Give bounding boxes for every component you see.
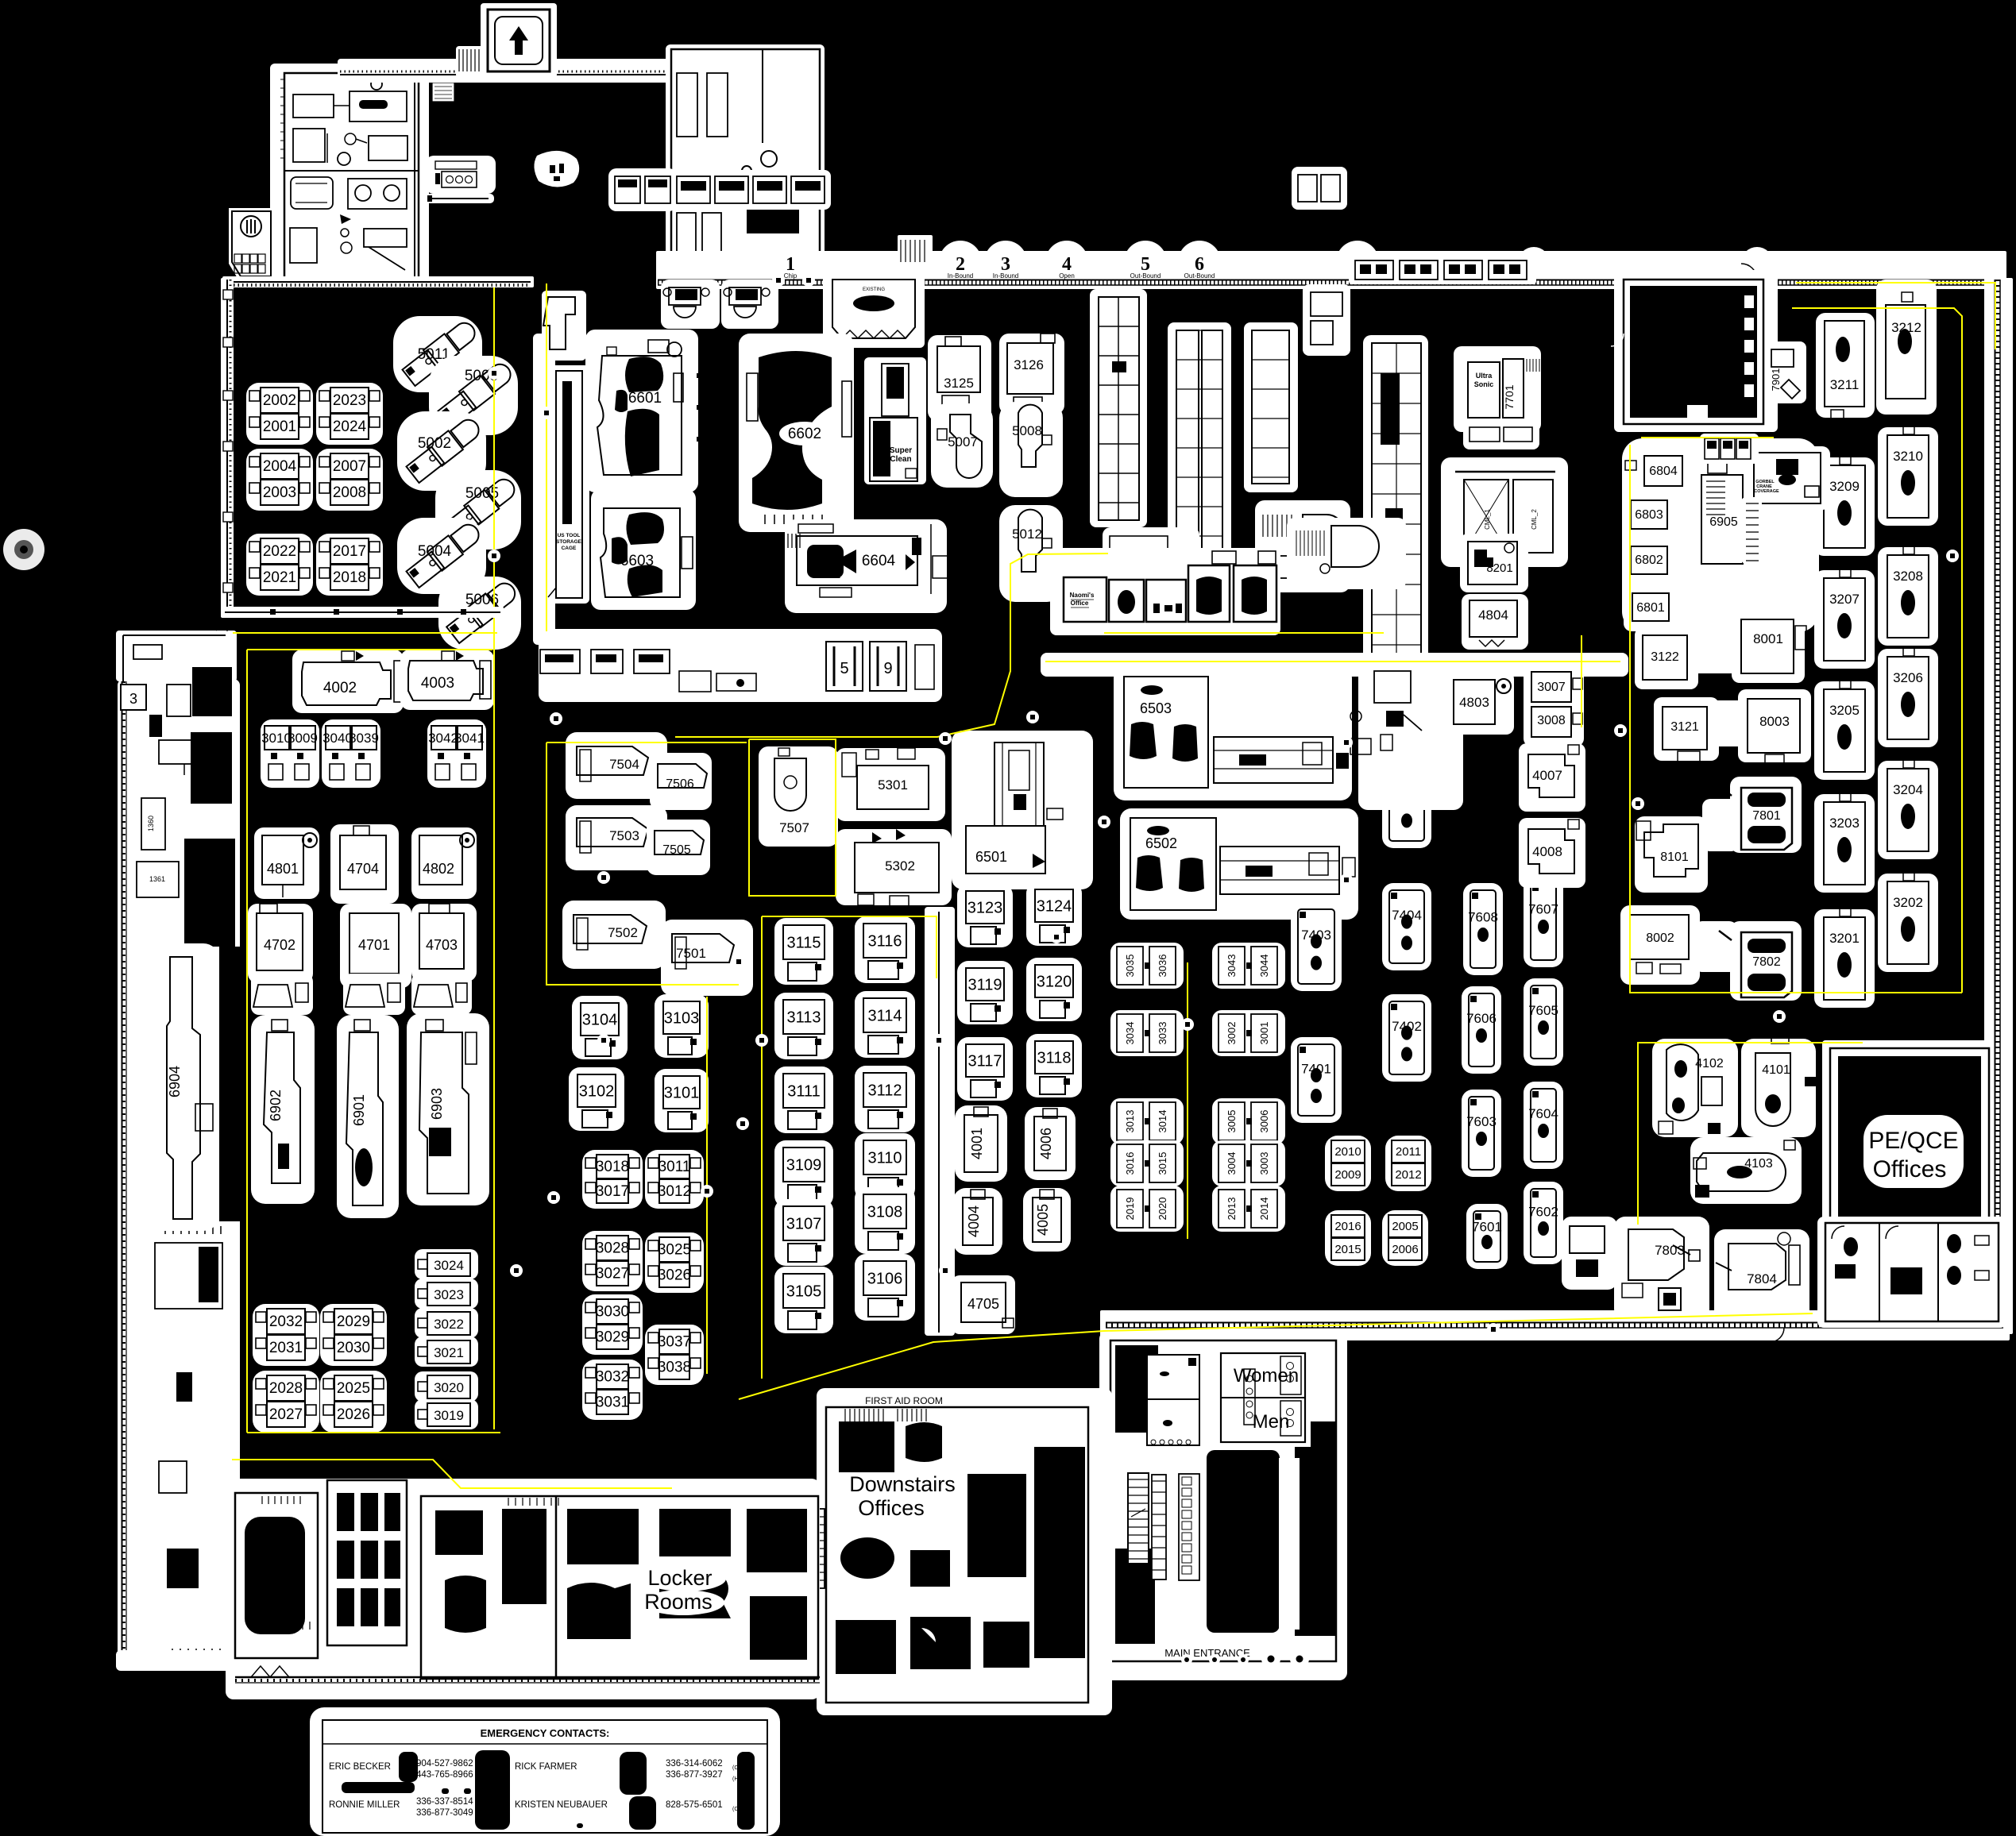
svg-text:5302: 5302 (885, 858, 915, 874)
svg-text:7507: 7507 (779, 820, 809, 835)
svg-text:4702: 4702 (264, 937, 295, 953)
svg-text:4704: 4704 (347, 861, 379, 877)
svg-text:3033: 3033 (1157, 1022, 1168, 1045)
svg-text:3114: 3114 (867, 1008, 902, 1025)
svg-text:3119: 3119 (967, 977, 1002, 994)
svg-text:2027: 2027 (269, 1406, 303, 1423)
svg-text:CML_2: CML_2 (1531, 509, 1538, 530)
svg-text:6903: 6903 (429, 1088, 445, 1120)
svg-text:3013: 3013 (1124, 1110, 1136, 1133)
svg-text:1361: 1361 (149, 875, 165, 883)
svg-text:7801: 7801 (1752, 809, 1781, 823)
svg-text:CAGE: CAGE (562, 546, 577, 551)
svg-text:RICK FARMER: RICK FARMER (515, 1762, 577, 1772)
svg-text:3109: 3109 (786, 1157, 822, 1174)
svg-text:5008: 5008 (1012, 423, 1042, 438)
svg-text:Chip: Chip (784, 272, 798, 280)
svg-text:7604: 7604 (1528, 1106, 1558, 1121)
svg-text:3007: 3007 (1537, 681, 1566, 694)
svg-text:6502: 6502 (1145, 835, 1177, 851)
svg-text:9: 9 (883, 660, 892, 677)
svg-text:5012: 5012 (1012, 526, 1042, 542)
svg-text:2014: 2014 (1258, 1198, 1270, 1221)
svg-text:6803: 6803 (1635, 508, 1663, 522)
svg-text:Out-Bound: Out-Bound (1130, 272, 1161, 280)
svg-text:3212: 3212 (1891, 320, 1921, 335)
svg-text:KRISTEN NEUBAUER: KRISTEN NEUBAUER (515, 1800, 608, 1810)
svg-text:Clean: Clean (890, 455, 911, 464)
svg-text:3021: 3021 (434, 1345, 464, 1360)
svg-text:4008: 4008 (1532, 844, 1562, 859)
svg-text:3105: 3105 (786, 1283, 822, 1301)
svg-text:7506: 7506 (666, 777, 694, 791)
svg-text:2004: 2004 (263, 458, 297, 475)
svg-text:In-Bound: In-Bound (993, 272, 1018, 280)
svg-text:Offices: Offices (1873, 1156, 1947, 1182)
svg-text:3012: 3012 (658, 1183, 691, 1200)
svg-text:RONNIE MILLER: RONNIE MILLER (329, 1800, 400, 1810)
svg-text:3: 3 (129, 691, 137, 707)
svg-text:3014: 3014 (1157, 1110, 1168, 1133)
svg-text:2024: 2024 (333, 418, 367, 435)
svg-text:3102: 3102 (579, 1083, 615, 1101)
svg-text:Out-Bound: Out-Bound (1184, 272, 1215, 280)
svg-text:4007: 4007 (1532, 768, 1562, 783)
svg-text:4001: 4001 (969, 1128, 985, 1159)
svg-text:3123: 3123 (967, 900, 1003, 917)
svg-text:3126: 3126 (1014, 357, 1044, 372)
svg-text:COVERAGE: COVERAGE (1754, 489, 1779, 494)
svg-text:3104: 3104 (582, 1012, 618, 1029)
svg-text:2011: 2011 (1396, 1145, 1421, 1159)
svg-text:8201: 8201 (1486, 561, 1512, 575)
svg-text:3016: 3016 (1124, 1152, 1136, 1175)
svg-text:2005: 2005 (1392, 1220, 1418, 1233)
svg-text:7606: 7606 (1466, 1011, 1497, 1026)
svg-text:4101: 4101 (1762, 1063, 1790, 1077)
svg-text:3032: 3032 (596, 1369, 629, 1386)
svg-text:4002: 4002 (323, 680, 357, 696)
svg-text:3025: 3025 (658, 1242, 691, 1259)
svg-text:Rooms: Rooms (644, 1590, 713, 1614)
svg-text:STORAGE: STORAGE (556, 539, 582, 545)
svg-text:7602: 7602 (1528, 1205, 1558, 1220)
svg-text:2002: 2002 (263, 392, 296, 409)
svg-text:3110: 3110 (867, 1150, 902, 1167)
svg-text:6603: 6603 (620, 553, 654, 569)
svg-text:7603: 7603 (1466, 1114, 1497, 1129)
svg-text:EMERGENCY CONTACTS:: EMERGENCY CONTACTS: (481, 1727, 610, 1739)
svg-text:7505: 7505 (662, 843, 691, 857)
svg-text:2009: 2009 (1334, 1168, 1361, 1182)
svg-text:4701: 4701 (358, 937, 390, 953)
svg-text:Office: Office (1071, 600, 1089, 607)
svg-text:6905: 6905 (1709, 515, 1738, 529)
svg-text:2001: 2001 (263, 418, 296, 435)
svg-text:336-877-3927: 336-877-3927 (666, 1770, 723, 1780)
svg-text:4004: 4004 (966, 1205, 982, 1237)
svg-text:2007: 2007 (333, 458, 366, 475)
svg-text:3101: 3101 (664, 1085, 700, 1102)
svg-text:2006: 2006 (1392, 1243, 1418, 1256)
svg-text:8003: 8003 (1759, 714, 1790, 729)
svg-text:3202: 3202 (1893, 895, 1923, 910)
svg-text:6804: 6804 (1649, 465, 1678, 478)
svg-text:1360: 1360 (678, 291, 694, 299)
svg-text:7501: 7501 (676, 946, 706, 961)
svg-text:2030: 2030 (337, 1340, 370, 1356)
svg-text:7608: 7608 (1468, 910, 1498, 925)
svg-text:3108: 3108 (867, 1204, 903, 1221)
svg-text:7701: 7701 (1503, 384, 1516, 409)
svg-text:7803: 7803 (1655, 1243, 1685, 1258)
svg-text:3002: 3002 (1226, 1022, 1238, 1045)
svg-text:3124: 3124 (1037, 898, 1072, 916)
svg-text:6503: 6503 (1140, 700, 1172, 716)
svg-text:3112: 3112 (867, 1082, 902, 1100)
svg-text:4003: 4003 (421, 675, 454, 692)
svg-text:4804: 4804 (1478, 607, 1508, 623)
svg-text:2020: 2020 (1157, 1198, 1168, 1221)
svg-text:7404: 7404 (1392, 908, 1422, 923)
svg-text:3015: 3015 (1157, 1152, 1168, 1175)
svg-text:7403: 7403 (1301, 928, 1331, 943)
svg-text:828-575-6501: 828-575-6501 (666, 1800, 723, 1810)
svg-text:PE/QCE: PE/QCE (1868, 1128, 1958, 1154)
svg-text:3209: 3209 (1829, 479, 1860, 494)
svg-text:3034: 3034 (1124, 1022, 1136, 1045)
svg-text:2028: 2028 (269, 1380, 303, 1397)
svg-text:7901: 7901 (1770, 368, 1782, 391)
svg-text:3103: 3103 (664, 1010, 700, 1028)
svg-text:US TOOL: US TOOL (558, 533, 581, 538)
svg-text:8002: 8002 (1646, 931, 1674, 945)
svg-text:Locker: Locker (647, 1566, 712, 1590)
svg-text:Offices: Offices (858, 1496, 925, 1520)
svg-text:7502: 7502 (608, 925, 638, 940)
svg-text:2032: 2032 (269, 1313, 303, 1330)
svg-text:336-877-3049: 336-877-3049 (416, 1808, 473, 1818)
svg-text:2025: 2025 (337, 1380, 370, 1397)
svg-text:2016: 2016 (1334, 1220, 1361, 1233)
svg-text:3211: 3211 (1830, 377, 1860, 392)
svg-text:7605: 7605 (1528, 1003, 1558, 1018)
svg-text:7503: 7503 (609, 828, 639, 843)
svg-text:3017: 3017 (596, 1183, 629, 1200)
svg-text:443-765-8966: 443-765-8966 (416, 1770, 473, 1780)
svg-text:2031: 2031 (269, 1340, 303, 1356)
svg-text:3210: 3210 (1893, 449, 1923, 464)
svg-text:3118: 3118 (1037, 1050, 1071, 1067)
svg-text:Super: Super (890, 446, 912, 455)
svg-text:3039: 3039 (349, 731, 379, 746)
svg-text:3203: 3203 (1829, 816, 1860, 831)
svg-text:2018: 2018 (333, 569, 366, 586)
svg-text:3107: 3107 (786, 1216, 822, 1233)
svg-text:3207: 3207 (1829, 592, 1860, 607)
svg-text:7402: 7402 (1392, 1019, 1422, 1034)
svg-text:3027: 3027 (596, 1266, 629, 1282)
svg-text:2008: 2008 (333, 484, 366, 501)
svg-text:5: 5 (840, 660, 848, 677)
svg-text:3041: 3041 (454, 731, 485, 746)
svg-text:1363: 1363 (739, 291, 755, 299)
svg-text:6602: 6602 (788, 426, 821, 442)
svg-text:3111: 3111 (787, 1083, 821, 1101)
svg-text:Women: Women (1234, 1365, 1299, 1387)
svg-text:3024: 3024 (434, 1258, 464, 1273)
svg-text:336-314-6062: 336-314-6062 (666, 1759, 723, 1768)
svg-text:4703: 4703 (426, 937, 458, 953)
svg-text:3026: 3026 (658, 1267, 691, 1284)
svg-text:4803: 4803 (1459, 695, 1489, 710)
svg-text:8101: 8101 (1660, 850, 1689, 864)
svg-text:2021: 2021 (263, 569, 296, 586)
svg-text:3201: 3201 (1829, 931, 1860, 946)
svg-text:4006: 4006 (1038, 1128, 1054, 1159)
svg-text:FIRST AID ROOM: FIRST AID ROOM (865, 1395, 943, 1406)
svg-text:EXISTING: EXISTING (863, 287, 885, 292)
svg-text:2010: 2010 (1334, 1145, 1361, 1159)
svg-text:7504: 7504 (609, 757, 639, 772)
svg-text:3028: 3028 (596, 1240, 629, 1257)
svg-text:ERIC BECKER: ERIC BECKER (329, 1762, 391, 1772)
svg-text:1360: 1360 (147, 816, 155, 831)
svg-text:3122: 3122 (1651, 650, 1679, 664)
svg-text:2017: 2017 (333, 543, 366, 560)
svg-text:6901: 6901 (351, 1094, 367, 1126)
svg-text:3106: 3106 (867, 1271, 903, 1288)
svg-text:Naomi's: Naomi's (1070, 592, 1095, 599)
svg-text:3115: 3115 (786, 935, 821, 952)
svg-text:2013: 2013 (1226, 1198, 1238, 1221)
svg-text:3044: 3044 (1258, 955, 1270, 978)
svg-text:2022: 2022 (263, 543, 296, 560)
svg-text:6501: 6501 (975, 849, 1007, 865)
svg-text:2003: 2003 (263, 484, 296, 501)
svg-text:3037: 3037 (658, 1334, 691, 1351)
svg-text:6802: 6802 (1635, 553, 1663, 567)
svg-text:3120: 3120 (1037, 974, 1072, 991)
svg-text:Men: Men (1253, 1411, 1290, 1433)
svg-text:3030: 3030 (596, 1304, 629, 1321)
svg-text:2023: 2023 (333, 392, 366, 409)
svg-text:4102: 4102 (1695, 1057, 1724, 1070)
svg-text:Sonic: Sonic (1474, 380, 1494, 388)
svg-text:3006: 3006 (1258, 1110, 1270, 1133)
svg-text:3031: 3031 (596, 1394, 629, 1411)
svg-text:8001: 8001 (1753, 631, 1783, 646)
svg-text:4103: 4103 (1744, 1157, 1773, 1171)
svg-text:7802: 7802 (1752, 955, 1781, 969)
svg-text:7804: 7804 (1747, 1271, 1777, 1286)
svg-text:3113: 3113 (786, 1009, 821, 1027)
svg-text:3005: 3005 (1226, 1110, 1238, 1133)
svg-text:2015: 2015 (1334, 1243, 1361, 1256)
svg-text:3003: 3003 (1258, 1152, 1270, 1175)
svg-text:4705: 4705 (967, 1296, 999, 1312)
svg-text:5007: 5007 (948, 434, 978, 449)
svg-text:3204: 3204 (1893, 782, 1923, 797)
svg-text:Ultra: Ultra (1476, 372, 1493, 380)
svg-text:MAIN ENTRANCE: MAIN ENTRANCE (1164, 1647, 1250, 1659)
svg-text:3036: 3036 (1157, 955, 1168, 978)
svg-text:Downstairs: Downstairs (849, 1472, 956, 1496)
svg-text:3121: 3121 (1670, 720, 1699, 734)
svg-text:Open: Open (1059, 272, 1075, 280)
svg-text:3001: 3001 (1258, 1022, 1270, 1045)
svg-text:6801: 6801 (1636, 601, 1665, 615)
svg-text:3205: 3205 (1829, 703, 1860, 718)
svg-text:2012: 2012 (1395, 1168, 1421, 1182)
svg-text:5004: 5004 (418, 543, 452, 560)
svg-text:3023: 3023 (434, 1287, 464, 1302)
svg-text:2019: 2019 (1124, 1198, 1136, 1221)
svg-text:3208: 3208 (1893, 569, 1923, 584)
svg-text:6904: 6904 (167, 1066, 183, 1097)
svg-text:3029: 3029 (596, 1329, 629, 1346)
svg-text:3125: 3125 (944, 376, 974, 391)
svg-text:3206: 3206 (1893, 670, 1923, 685)
svg-text:4005: 4005 (1035, 1204, 1051, 1236)
svg-text:6604: 6604 (862, 553, 896, 569)
svg-text:7601: 7601 (1472, 1219, 1502, 1234)
svg-text:336-337-8514: 336-337-8514 (416, 1797, 473, 1807)
svg-text:3004: 3004 (1226, 1152, 1238, 1175)
svg-text:4801: 4801 (267, 861, 299, 877)
svg-text:3035: 3035 (1124, 955, 1136, 978)
svg-text:7401: 7401 (1301, 1061, 1331, 1076)
svg-text:3019: 3019 (434, 1408, 464, 1423)
svg-text:3009: 3009 (288, 731, 318, 746)
svg-text:5301: 5301 (878, 777, 908, 793)
svg-text:3022: 3022 (434, 1317, 464, 1332)
svg-text:3008: 3008 (1537, 714, 1566, 727)
svg-text:3116: 3116 (867, 933, 902, 951)
svg-text:6601: 6601 (628, 390, 662, 407)
svg-text:3043: 3043 (1226, 955, 1238, 978)
svg-text:In-Bound: In-Bound (948, 272, 973, 280)
svg-text:5002: 5002 (418, 435, 451, 452)
svg-text:3018: 3018 (596, 1159, 629, 1175)
svg-text:3011: 3011 (658, 1159, 691, 1175)
svg-text:3117: 3117 (967, 1053, 1002, 1070)
svg-text:2029: 2029 (337, 1313, 370, 1330)
svg-text:7607: 7607 (1528, 902, 1558, 917)
svg-text:6902: 6902 (268, 1090, 284, 1121)
svg-text:2026: 2026 (337, 1406, 370, 1423)
svg-text:904-527-9862: 904-527-9862 (416, 1759, 473, 1768)
svg-text:4802: 4802 (423, 861, 454, 877)
svg-text:3020: 3020 (434, 1380, 464, 1395)
svg-text:3038: 3038 (658, 1360, 691, 1376)
svg-text:CML_1: CML_1 (1484, 509, 1491, 530)
